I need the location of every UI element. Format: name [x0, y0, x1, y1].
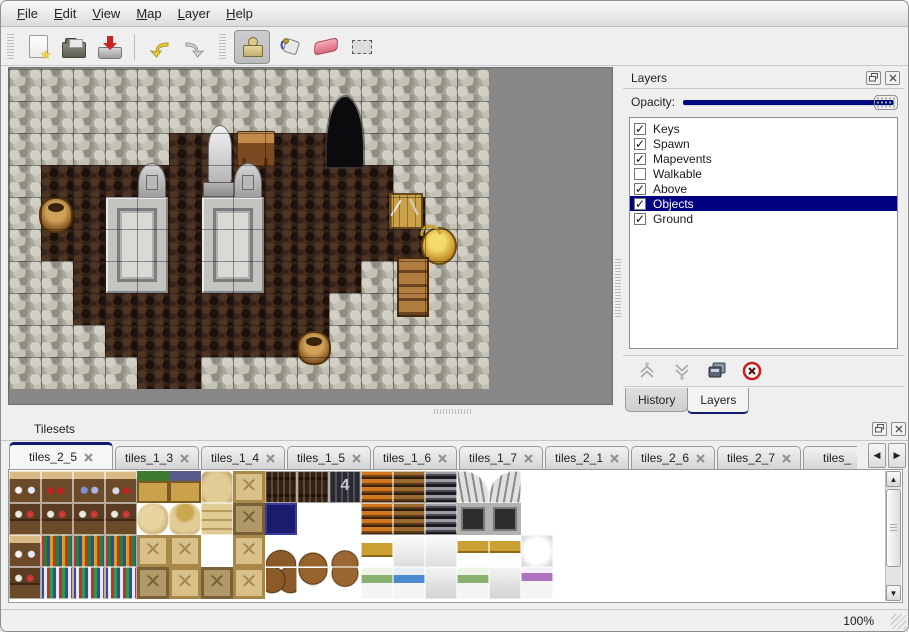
floor-tile[interactable] [169, 133, 201, 165]
palette-tile-bedWhiteB[interactable] [489, 567, 521, 599]
palette-tile-archL[interactable] [457, 471, 489, 503]
wall-tile[interactable] [9, 69, 41, 101]
palette-tile-ladderK[interactable] [425, 471, 457, 503]
tileset-tab-label: tiles_2_5 [29, 450, 77, 464]
tilesets-float-button[interactable] [872, 422, 887, 436]
floor-tile[interactable] [329, 165, 361, 197]
palette-tile-crateGrape[interactable] [169, 471, 201, 503]
wall-tile[interactable] [105, 357, 137, 389]
floor-tile[interactable] [265, 165, 297, 197]
floor-tile[interactable] [169, 357, 201, 389]
redo-icon [182, 36, 208, 58]
opacity-row: Opacity: [623, 89, 904, 115]
wall-tile[interactable] [393, 101, 425, 133]
wall-tile[interactable] [41, 101, 73, 133]
layer-visibility-checkbox[interactable]: ✓ [634, 198, 646, 210]
tab-close-icon[interactable] [180, 454, 189, 463]
palette-tile-bookBot[interactable] [105, 567, 137, 599]
palette-tile-crateXd[interactable] [137, 567, 169, 599]
floor-tile[interactable] [329, 261, 361, 293]
floor-tile[interactable] [361, 229, 393, 261]
floor-tile[interactable] [297, 293, 329, 325]
save-icon [98, 47, 122, 59]
menu-view[interactable]: View [84, 2, 128, 25]
tileset-tab-tiles_1_7[interactable]: tiles_1_7 [459, 446, 543, 469]
floor-tile[interactable] [201, 293, 233, 325]
layer-visibility-checkbox[interactable]: ✓ [634, 183, 646, 195]
wall-tile[interactable] [73, 133, 105, 165]
floor-tile[interactable] [169, 229, 201, 261]
palette-tile-shelfA[interactable] [9, 535, 41, 567]
palette-tile-crateX[interactable] [233, 535, 265, 567]
tab-close-icon[interactable] [438, 454, 447, 463]
menu-file[interactable]: File [9, 2, 46, 25]
wall-tile[interactable] [9, 165, 41, 197]
layers-close-button[interactable] [885, 71, 900, 85]
wall-tile[interactable] [425, 133, 457, 165]
tileset-tab-tiles_1_5[interactable]: tiles_1_5 [287, 446, 371, 469]
wall-tile[interactable] [265, 101, 297, 133]
layer-visibility-checkbox[interactable]: ✓ [634, 138, 646, 150]
floor-tile[interactable] [297, 261, 329, 293]
palette-tile-ladderK[interactable] [425, 503, 457, 535]
wall-tile[interactable] [265, 69, 297, 101]
open-folder-icon [62, 42, 86, 58]
tileset-tab-tiles_1_6[interactable]: tiles_1_6 [373, 446, 457, 469]
floor-tile[interactable] [233, 325, 265, 357]
tab-close-icon[interactable] [524, 454, 533, 463]
wall-tile[interactable] [233, 357, 265, 389]
palette-tile-shelfC[interactable] [73, 471, 105, 503]
duplicate-layer-button[interactable] [705, 359, 729, 383]
palette-tile-potsB[interactable] [329, 567, 361, 599]
close-icon [889, 74, 897, 82]
eraser-tool-button[interactable] [310, 31, 342, 63]
palette-tile-boxBlue[interactable] [265, 503, 297, 535]
palette-tile-barrelT[interactable] [297, 535, 329, 567]
layer-label: Above [653, 182, 687, 196]
menu-map[interactable]: Map [128, 2, 169, 25]
floor-tile[interactable] [137, 293, 169, 325]
up-arrow-icon: ▲ [890, 475, 898, 484]
tileset-tab-tiles_2_5[interactable]: tiles_2_5 [9, 442, 113, 469]
move-layer-up-button[interactable] [635, 359, 659, 383]
map-object-crate-with-tools[interactable] [389, 193, 423, 229]
save-map-button[interactable] [94, 31, 126, 63]
tileset-tab-tiles_2_6[interactable]: tiles_2_6 [631, 446, 715, 469]
wall-tile[interactable] [425, 165, 457, 197]
floor-tile[interactable] [265, 197, 297, 229]
palette-tile-shelfLo[interactable] [9, 503, 41, 535]
floor-tile[interactable] [73, 293, 105, 325]
palette-tile-sackStack[interactable] [201, 503, 233, 535]
palette-tile-sackTall[interactable] [201, 471, 233, 503]
wall-tile[interactable] [137, 101, 169, 133]
wall-tile[interactable] [457, 133, 489, 165]
palette-tile-bookTop[interactable] [73, 535, 105, 567]
palette-tile-archR[interactable] [489, 471, 521, 503]
down-arrow-icon: ▼ [890, 589, 898, 598]
statusbar: 100% [1, 609, 908, 631]
wall-tile[interactable] [457, 69, 489, 101]
scroll-down-button[interactable]: ▼ [886, 585, 901, 601]
palette-tile-bookBot[interactable] [41, 567, 73, 599]
wall-tile[interactable] [457, 325, 489, 357]
floor-tile[interactable] [297, 197, 329, 229]
wall-tile[interactable] [297, 101, 329, 133]
opacity-slider[interactable] [683, 94, 898, 110]
tileset-tab-label: tiles_1_7 [469, 451, 517, 465]
wall-tile[interactable] [233, 101, 265, 133]
floor-tile[interactable] [137, 357, 169, 389]
tab-close-icon[interactable] [610, 454, 619, 463]
palette-tile-crateX[interactable] [169, 567, 201, 599]
menu-layer[interactable]: Layer [170, 2, 219, 25]
palette-tile-crateX[interactable] [233, 567, 265, 599]
map-canvas[interactable] [9, 69, 489, 389]
menu-edit[interactable]: Edit [46, 2, 84, 25]
palette-tile-pipeGold[interactable] [489, 535, 521, 567]
layer-visibility-checkbox[interactable]: ✓ [634, 153, 646, 165]
select-tool-button[interactable] [346, 31, 378, 63]
wall-tile[interactable] [169, 101, 201, 133]
wall-tile[interactable] [73, 69, 105, 101]
wall-tile[interactable] [393, 69, 425, 101]
map-object-gravestone-left[interactable] [138, 163, 166, 199]
floor-tile[interactable] [169, 197, 201, 229]
map-object-statue[interactable] [203, 125, 237, 197]
wall-tile[interactable] [233, 69, 265, 101]
palette-tile-shelfA[interactable] [9, 471, 41, 503]
wall-tile[interactable] [137, 69, 169, 101]
scroll-up-button[interactable]: ▲ [886, 471, 901, 487]
layer-row-walkable[interactable]: Walkable [630, 166, 897, 181]
palette-tile-keg[interactable] [297, 471, 329, 503]
floor-tile[interactable] [169, 325, 201, 357]
wall-tile[interactable] [457, 101, 489, 133]
palette-vertical-scrollbar[interactable]: ▲ ▼ [885, 471, 901, 601]
palette-tile-barrelB[interactable] [297, 567, 329, 599]
palette-tile-ladderB[interactable] [393, 503, 425, 535]
wall-tile[interactable] [425, 69, 457, 101]
floor-tile[interactable] [105, 293, 137, 325]
wall-tile[interactable] [41, 133, 73, 165]
palette-tile-shelfLo[interactable] [73, 503, 105, 535]
wall-tile[interactable] [361, 133, 393, 165]
tabs-scroll-left-button[interactable]: ◀ [868, 443, 886, 468]
map-object-wooden-cabinet[interactable] [397, 257, 429, 317]
float-icon [875, 424, 884, 433]
new-file-icon [29, 35, 48, 58]
palette-tile-pipeGold[interactable] [457, 535, 489, 567]
redo-button[interactable] [179, 31, 211, 63]
palette-tile-bookTop[interactable] [41, 535, 73, 567]
layer-label: Keys [653, 122, 680, 136]
floor-tile[interactable] [169, 165, 201, 197]
wall-tile[interactable] [105, 69, 137, 101]
palette-tile-shelfD[interactable] [105, 471, 137, 503]
floor-tile[interactable] [41, 229, 73, 261]
vertical-splitter[interactable] [613, 67, 623, 405]
wall-tile[interactable] [425, 357, 457, 389]
palette-tile-bedBlue[interactable] [393, 567, 425, 599]
layer-list[interactable]: ✓Keys✓Spawn✓MapeventsWalkable✓Above✓Obje… [629, 117, 898, 349]
tileset-tab-tiles_2_1[interactable]: tiles_2_1 [545, 446, 629, 469]
undo-button[interactable] [143, 31, 175, 63]
wall-tile[interactable] [361, 325, 393, 357]
tileset-tab-bar: tiles_2_5tiles_1_3tiles_1_4tiles_1_5tile… [1, 441, 909, 469]
palette-tile-pillow[interactable] [521, 535, 553, 567]
resize-grip[interactable] [891, 614, 906, 629]
palette-tile-bookTop[interactable] [105, 535, 137, 567]
horizontal-splitter-grip [434, 409, 472, 414]
palette-tile-ladderO[interactable] [361, 503, 393, 535]
floor-tile[interactable] [329, 229, 361, 261]
floor-tile[interactable] [73, 229, 105, 261]
opacity-slider-handle[interactable] [874, 95, 898, 110]
floor-tile[interactable] [169, 261, 201, 293]
menu-label: H [226, 6, 235, 21]
palette-tile-crateX[interactable] [233, 471, 265, 503]
fill-bucket-icon [277, 35, 303, 59]
map-object-stone-platform-right[interactable] [202, 197, 264, 293]
tab-close-icon[interactable] [266, 454, 275, 463]
floor-tile[interactable] [41, 165, 73, 197]
palette-tile-shelfLo[interactable] [9, 567, 41, 599]
wall-tile[interactable] [457, 197, 489, 229]
wall-tile[interactable] [73, 325, 105, 357]
floor-tile[interactable] [233, 293, 265, 325]
duplicate-icon [707, 362, 727, 380]
wall-tile[interactable] [137, 133, 169, 165]
layer-visibility-checkbox[interactable]: ✓ [634, 213, 646, 225]
wall-tile[interactable] [361, 357, 393, 389]
wall-tile[interactable] [9, 293, 41, 325]
palette-tile-cratePlant[interactable] [137, 471, 169, 503]
palette-tile-ladderB[interactable] [393, 471, 425, 503]
tileset-tab-tiles_1_3[interactable]: tiles_1_3 [115, 446, 199, 469]
wall-tile[interactable] [425, 101, 457, 133]
tab-close-icon[interactable] [84, 453, 93, 462]
tileset-palette-view[interactable]: ▲ ▼ [8, 469, 903, 603]
floor-tile[interactable] [265, 293, 297, 325]
palette-tile-bookBot[interactable] [73, 567, 105, 599]
floor-tile[interactable] [297, 133, 329, 165]
wall-tile[interactable] [457, 229, 489, 261]
palette-tile-keg[interactable] [265, 471, 297, 503]
wall-tile[interactable] [169, 69, 201, 101]
palette-tile-bedGoldH[interactable] [361, 535, 393, 567]
palette-tile-door[interactable] [457, 503, 489, 535]
floor-tile[interactable] [201, 325, 233, 357]
layers-float-button[interactable] [866, 71, 881, 85]
map-object-gravestone-right[interactable] [234, 163, 262, 199]
menu-label: dit [63, 6, 77, 21]
dock-tab-layers[interactable]: Layers [687, 388, 749, 414]
palette-tile-bedGreen[interactable] [361, 567, 393, 599]
floor-tile[interactable] [265, 229, 297, 261]
layers-dock: Layers Opacity: ✓Keys✓Spawn✓MapeventsWa [623, 67, 904, 413]
menu-label: ile [25, 6, 38, 21]
toolbar-grip[interactable] [7, 34, 14, 60]
wall-tile[interactable] [361, 69, 393, 101]
floor-tile[interactable] [73, 197, 105, 229]
map-object-basket-left[interactable] [39, 197, 73, 233]
fill-tool-button[interactable] [274, 31, 306, 63]
map-object-stone-platform-left[interactable] [106, 197, 168, 293]
palette-tile-bedWhiteT[interactable] [393, 535, 425, 567]
layers-panel-title: Layers [631, 71, 667, 85]
toolbar-grip-2[interactable] [219, 34, 226, 60]
wall-tile[interactable] [361, 261, 393, 293]
wall-tile[interactable] [329, 293, 361, 325]
floor-tile[interactable] [265, 261, 297, 293]
layer-row-above[interactable]: ✓Above [630, 181, 897, 196]
palette-tile-bedWhiteB[interactable] [425, 567, 457, 599]
wall-tile[interactable] [393, 357, 425, 389]
palette-tile-bedPurple[interactable] [521, 567, 553, 599]
layer-row-ground[interactable]: ✓Ground [630, 211, 897, 226]
floor-tile[interactable] [73, 261, 105, 293]
tileset-tab-label: tiles_1_4 [211, 451, 259, 465]
tileset-tab-tiles_2_7[interactable]: tiles_2_7 [717, 446, 801, 469]
tab-close-icon[interactable] [782, 454, 791, 463]
tileset-tab-tiles_1_4[interactable]: tiles_1_4 [201, 446, 285, 469]
wall-tile[interactable] [457, 357, 489, 389]
palette-tile-bedGreen[interactable] [457, 567, 489, 599]
palette-tile-crateX[interactable] [169, 535, 201, 567]
tab-close-icon[interactable] [696, 454, 705, 463]
wall-tile[interactable] [9, 133, 41, 165]
wall-tile[interactable] [361, 293, 393, 325]
dock-tab-history[interactable]: History [625, 388, 688, 412]
tileset-tab-tiles[interactable]: tiles_ [803, 446, 857, 469]
layer-visibility-checkbox[interactable] [634, 168, 646, 180]
float-icon [869, 73, 878, 82]
wall-tile[interactable] [41, 293, 73, 325]
horizontal-splitter[interactable] [1, 405, 621, 417]
wall-tile[interactable] [393, 133, 425, 165]
floor-tile[interactable] [297, 229, 329, 261]
wall-tile[interactable] [457, 165, 489, 197]
wall-tile[interactable] [329, 357, 361, 389]
palette-tile-kegNum[interactable] [329, 471, 361, 503]
floor-tile[interactable] [297, 165, 329, 197]
wall-tile[interactable] [201, 357, 233, 389]
palette-tile-ladderO[interactable] [361, 471, 393, 503]
palette-tile-shelfLo[interactable] [105, 503, 137, 535]
floor-tile[interactable] [105, 325, 137, 357]
wall-tile[interactable] [9, 261, 41, 293]
menu-label: E [54, 6, 63, 21]
palette-tile-sackRound[interactable] [137, 503, 169, 535]
menu-help[interactable]: Help [218, 2, 261, 25]
palette-tile-crateX[interactable] [137, 535, 169, 567]
tilesets-close-button[interactable] [891, 422, 906, 436]
layer-toolbar [623, 355, 904, 387]
floor-tile[interactable] [105, 165, 137, 197]
wall-tile[interactable] [41, 261, 73, 293]
layer-row-keys[interactable]: ✓Keys [630, 121, 897, 136]
arrow-up-icon [637, 361, 657, 381]
layer-visibility-checkbox[interactable]: ✓ [634, 123, 646, 135]
wall-tile[interactable] [105, 101, 137, 133]
floor-tile[interactable] [329, 197, 361, 229]
floor-tile[interactable] [169, 293, 201, 325]
wall-tile[interactable] [41, 69, 73, 101]
palette-tile-crateXd[interactable] [233, 503, 265, 535]
wall-tile[interactable] [105, 133, 137, 165]
tabs-scroll-right-button[interactable]: ▶ [888, 443, 906, 468]
palette-tile-bedWhiteT[interactable] [425, 535, 457, 567]
layer-row-objects[interactable]: ✓Objects [630, 196, 897, 211]
layer-label: Spawn [653, 137, 690, 151]
wall-tile[interactable] [73, 101, 105, 133]
wall-tile[interactable] [425, 293, 457, 325]
wall-tile[interactable] [457, 261, 489, 293]
menu-label: L [178, 6, 185, 21]
wall-tile[interactable] [361, 101, 393, 133]
wall-tile[interactable] [457, 293, 489, 325]
palette-tile-potsT[interactable] [329, 535, 361, 567]
palette-tile-shelfB[interactable] [41, 471, 73, 503]
palette-tile-barrelsT[interactable] [265, 535, 297, 567]
map-object-wooden-table[interactable] [237, 131, 275, 167]
wall-tile[interactable] [201, 69, 233, 101]
stamp-tool-button[interactable] [234, 30, 270, 64]
layer-row-spawn[interactable]: ✓Spawn [630, 136, 897, 151]
wall-tile[interactable] [9, 197, 41, 229]
new-map-button[interactable] [22, 31, 54, 63]
tilesets-panel-header: Tilesets [1, 417, 909, 441]
tab-close-icon[interactable] [352, 454, 361, 463]
delete-layer-button[interactable] [740, 359, 764, 383]
palette-tile-sackOpen[interactable] [169, 503, 201, 535]
floor-tile[interactable] [137, 325, 169, 357]
wall-tile[interactable] [425, 261, 457, 293]
layer-label: Objects [653, 197, 694, 211]
vertical-splitter-grip [615, 259, 621, 317]
wall-tile[interactable] [9, 325, 41, 357]
wall-tile[interactable] [329, 325, 361, 357]
wall-tile[interactable] [265, 357, 297, 389]
open-map-button[interactable] [58, 31, 90, 63]
tileset-tab-label: tiles_1_5 [297, 451, 345, 465]
wall-tile[interactable] [393, 325, 425, 357]
floor-tile[interactable] [73, 165, 105, 197]
layer-row-mapevents[interactable]: ✓Mapevents [630, 151, 897, 166]
map-canvas-view[interactable] [8, 67, 613, 405]
wall-tile[interactable] [41, 357, 73, 389]
wall-tile[interactable] [9, 357, 41, 389]
wall-tile[interactable] [297, 69, 329, 101]
layers-panel-header: Layers [623, 67, 904, 89]
wall-tile[interactable] [41, 325, 73, 357]
move-layer-down-button[interactable] [670, 359, 694, 383]
wall-tile[interactable] [73, 357, 105, 389]
floor-tile[interactable] [265, 325, 297, 357]
scrollbar-thumb[interactable] [886, 489, 901, 567]
wall-tile[interactable] [9, 101, 41, 133]
palette-tile-door[interactable] [489, 503, 521, 535]
wall-tile[interactable] [9, 229, 41, 261]
palette-tile-crateXd[interactable] [201, 567, 233, 599]
wall-tile[interactable] [425, 325, 457, 357]
palette-tile-barrelsB[interactable] [265, 567, 297, 599]
menu-label: M [136, 6, 147, 21]
map-object-basket-bottom[interactable] [297, 331, 331, 365]
palette-tile-shelfLo[interactable] [41, 503, 73, 535]
